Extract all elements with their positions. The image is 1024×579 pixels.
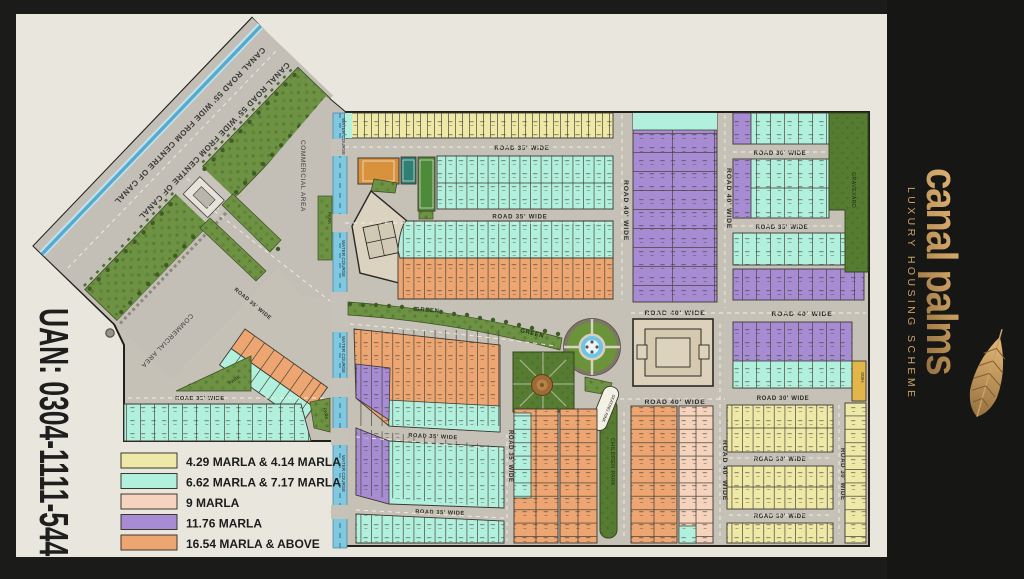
svg-text:GRAVEYARD: GRAVEYARD: [850, 172, 856, 208]
svg-text:CHILDREN PARK: CHILDREN PARK: [609, 438, 615, 486]
svg-text:ROAD 40' WIDE: ROAD 40' WIDE: [721, 440, 728, 501]
svg-text:UAN: 0304-1111-544: UAN: 0304-1111-544: [30, 308, 75, 556]
svg-text:WATER COURSE: WATER COURSE: [341, 240, 346, 277]
svg-text:ROAD 30' WIDE: ROAD 30' WIDE: [839, 448, 845, 501]
svg-text:ROAD 40' WIDE: ROAD 40' WIDE: [771, 311, 832, 318]
svg-text:16.54 MARLA & ABOVE: 16.54 MARLA & ABOVE: [186, 537, 320, 551]
svg-text:ROAD 35' WIDE: ROAD 35' WIDE: [175, 396, 225, 402]
svg-text:ROAD 30' WIDE: ROAD 30' WIDE: [757, 396, 810, 402]
svg-text:PARK: PARK: [327, 212, 332, 225]
svg-text:LUXURY HOUSING SCHEME: LUXURY HOUSING SCHEME: [905, 187, 917, 400]
svg-text:SWH: SWH: [860, 372, 865, 383]
svg-text:11.76 MARLA: 11.76 MARLA: [186, 517, 262, 531]
svg-text:WATER COURSE: WATER COURSE: [341, 455, 346, 492]
svg-text:4.29 MARLA & 4.14 MARLA: 4.29 MARLA & 4.14 MARLA: [186, 455, 341, 469]
svg-text:ROAD 40' WIDE: ROAD 40' WIDE: [725, 168, 732, 229]
svg-text:WATER COURSE: WATER COURSE: [341, 336, 346, 373]
svg-text:COMMERCIAL AREA: COMMERCIAL AREA: [299, 140, 306, 212]
svg-text:ROAD 40' WIDE: ROAD 40' WIDE: [644, 310, 705, 317]
svg-text:ROAD 35' WIDE: ROAD 35' WIDE: [507, 430, 513, 483]
svg-text:canal palms: canal palms: [917, 168, 966, 375]
svg-text:6.62 MARLA & 7.17 MARLA: 6.62 MARLA & 7.17 MARLA: [186, 476, 341, 490]
svg-text:9 MARLA: 9 MARLA: [186, 496, 240, 510]
svg-text:ROAD 40' WIDE: ROAD 40' WIDE: [622, 180, 629, 241]
svg-text:ROAD 40' WIDE: ROAD 40' WIDE: [644, 399, 705, 406]
svg-text:ROAD 35' WIDE: ROAD 35' WIDE: [492, 215, 547, 221]
